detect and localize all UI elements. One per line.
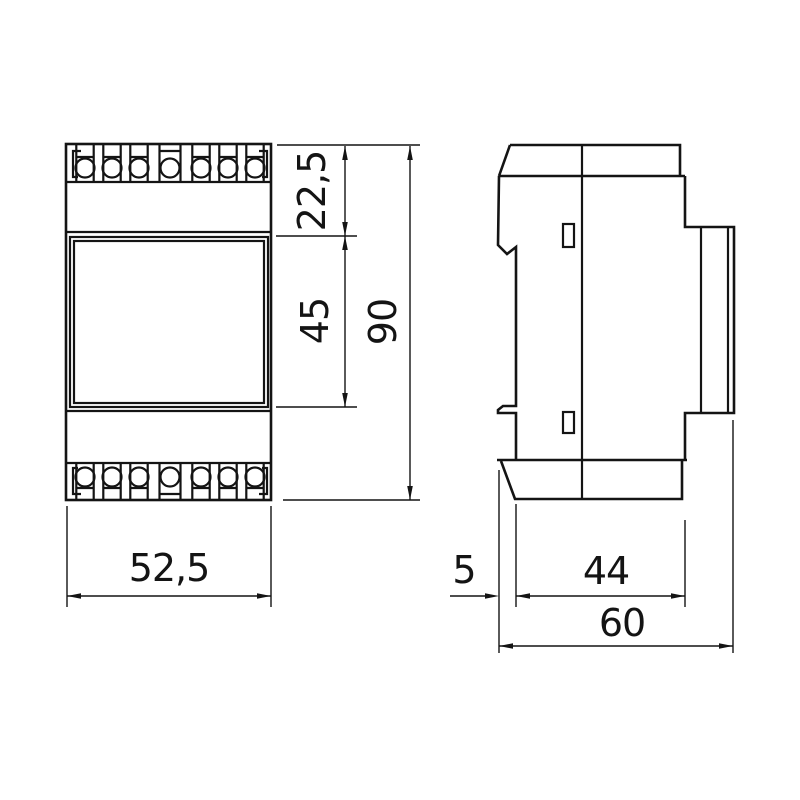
dim-total-depth: 60 <box>499 601 733 649</box>
extension-lines-front <box>67 145 420 607</box>
arrow-left-icon <box>499 643 513 649</box>
dim-total-height: 90 <box>361 146 413 500</box>
arrow-up-icon <box>407 146 413 160</box>
screw-terminal-icon <box>130 159 149 178</box>
screw-terminal-icon <box>161 159 180 178</box>
arrow-down-icon <box>407 486 413 500</box>
vent-slot-upper <box>563 224 574 247</box>
side-left-profile-din-clip <box>498 176 516 460</box>
front-view <box>66 144 271 500</box>
arrow-right-icon <box>257 593 271 599</box>
arrow-down-icon <box>342 393 348 407</box>
arrow-right-icon <box>719 643 733 649</box>
dim-middle-section: 45 <box>293 236 348 407</box>
screw-terminal-icon <box>103 468 122 487</box>
front-body-outline <box>66 144 271 500</box>
screw-terminal-icon <box>246 159 265 178</box>
dim-label-total-depth: 60 <box>599 601 645 645</box>
terminal-end-bracket <box>73 468 267 494</box>
screw-terminal-icon <box>219 159 238 178</box>
face-panel-outer <box>70 237 268 407</box>
arrow-right-icon <box>671 593 685 599</box>
arrow-left-icon <box>516 593 530 599</box>
dim-label-body-depth: 44 <box>583 549 629 593</box>
screw-terminal-icon <box>192 468 211 487</box>
side-bottom-cover <box>501 461 682 499</box>
drawing-canvas: 52,5 22,5 45 90 5 <box>0 0 800 800</box>
dim-body-depth: 44 <box>516 549 685 599</box>
terminal-end-bracket <box>73 151 267 177</box>
face-panel-inner <box>74 241 264 403</box>
dim-label-front-width: 52,5 <box>129 546 210 590</box>
screw-terminal-icon <box>130 468 149 487</box>
screw-terminal-icon <box>161 468 180 487</box>
top-terminal-strip <box>73 145 267 182</box>
screw-terminal-icon <box>76 159 95 178</box>
arrow-down-icon <box>342 222 348 236</box>
screw-terminal-icon <box>76 468 95 487</box>
dim-label-clip-offset: 5 <box>452 548 475 592</box>
arrow-right-icon <box>485 593 499 599</box>
bottom-terminal-strip <box>73 463 267 500</box>
dim-front-width: 52,5 <box>67 546 271 599</box>
arrow-up-icon <box>342 146 348 160</box>
dim-label-middle-section: 45 <box>293 298 337 344</box>
screw-terminal-icon <box>219 468 238 487</box>
screw-terminal-icon <box>103 159 122 178</box>
dim-label-top-section: 22,5 <box>290 151 334 232</box>
screw-terminal-icon <box>246 468 265 487</box>
dim-top-section: 22,5 <box>290 146 348 236</box>
dim-clip-offset: 5 <box>450 548 499 599</box>
dimension-drawing: 52,5 22,5 45 90 5 <box>0 0 800 800</box>
arrow-left-icon <box>67 593 81 599</box>
side-view <box>497 145 734 499</box>
dimensions: 52,5 22,5 45 90 5 <box>67 145 733 653</box>
screw-terminal-icon <box>192 159 211 178</box>
front-panel-edge-lines <box>701 227 728 413</box>
side-right-profile <box>497 176 734 460</box>
vent-slot-lower <box>563 412 574 433</box>
arrow-up-icon <box>342 236 348 250</box>
side-top-cap <box>499 145 685 176</box>
dim-label-total-height: 90 <box>361 299 405 345</box>
